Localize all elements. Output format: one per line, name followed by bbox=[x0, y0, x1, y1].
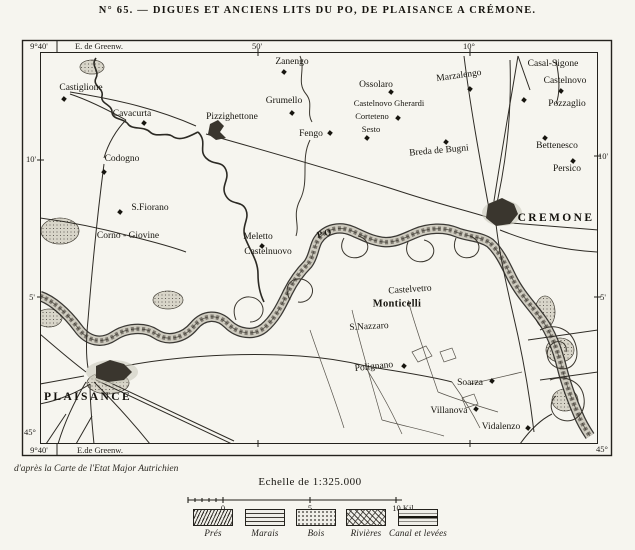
place-label: Castiglione bbox=[59, 83, 102, 93]
graticule-label: 45° bbox=[24, 427, 36, 437]
place-label: Codogno bbox=[105, 154, 140, 164]
place-label: PLAISANCE bbox=[44, 391, 132, 403]
place-label: Corno - Giovine bbox=[97, 231, 159, 241]
legend-label: Canal et levées bbox=[376, 528, 460, 538]
graticule-label: 10' bbox=[598, 151, 608, 161]
place-label: Corteteno bbox=[355, 111, 389, 121]
graticule-label: 9°40' bbox=[30, 41, 48, 51]
place-label: Pizzighettone bbox=[206, 112, 258, 122]
legend-item: Canal et levées bbox=[376, 509, 460, 538]
place-label: Pozzaglio bbox=[548, 99, 585, 109]
place-label: Soarza bbox=[457, 378, 483, 388]
place-label: Zanengo bbox=[275, 57, 308, 67]
place-label: Vidalenzo bbox=[482, 422, 520, 432]
place-label: S.Nazzaro bbox=[349, 321, 389, 333]
graticule-label: 10° bbox=[463, 41, 475, 51]
graticule-label: 5' bbox=[29, 292, 35, 302]
graticule-label: 45° bbox=[596, 444, 608, 454]
place-label: Cavacurta bbox=[113, 109, 152, 119]
parcel-lines bbox=[310, 300, 522, 436]
adda-river bbox=[94, 58, 264, 302]
graticule-label: 10' bbox=[26, 154, 36, 164]
place-label: Meletto bbox=[243, 232, 273, 242]
graticule-label: 9°40' bbox=[30, 445, 48, 455]
place-label: Fengo bbox=[299, 129, 323, 139]
place-label: S.Fiorano bbox=[131, 203, 168, 213]
attribution: d'après la Carte de l'Etat Major Autrich… bbox=[14, 464, 178, 474]
po-river bbox=[40, 228, 590, 436]
place-label: Casal-Sigone bbox=[528, 59, 579, 69]
graticule-label: 50' bbox=[252, 41, 262, 51]
canal-swatch bbox=[398, 509, 438, 526]
place-label: Castelnovo bbox=[544, 76, 587, 86]
graticule-label: E. de Greenw. bbox=[75, 41, 123, 51]
place-label: Villanova bbox=[431, 406, 468, 416]
place-label: Castelnuovo bbox=[244, 247, 292, 257]
place-label: CREMONE bbox=[518, 212, 595, 224]
place-label: Monticelli bbox=[373, 299, 422, 310]
place-label: Castelnovo Gherardi bbox=[354, 98, 425, 108]
graticule-label: 5' bbox=[600, 292, 606, 302]
place-label: Persico bbox=[553, 164, 581, 174]
place-label: Ossolaro bbox=[359, 80, 393, 90]
scale-heading: Echelle de 1:325.000 bbox=[0, 476, 620, 488]
place-label: Sesto bbox=[362, 124, 380, 134]
graticule-label: E.de Greenw. bbox=[77, 445, 123, 455]
place-label: Bettenesco bbox=[536, 141, 578, 151]
place-label: Grumello bbox=[266, 96, 302, 106]
map-page: N° 65. — DIGUES ET ANCIENS LITS DU PO, D… bbox=[0, 0, 635, 550]
